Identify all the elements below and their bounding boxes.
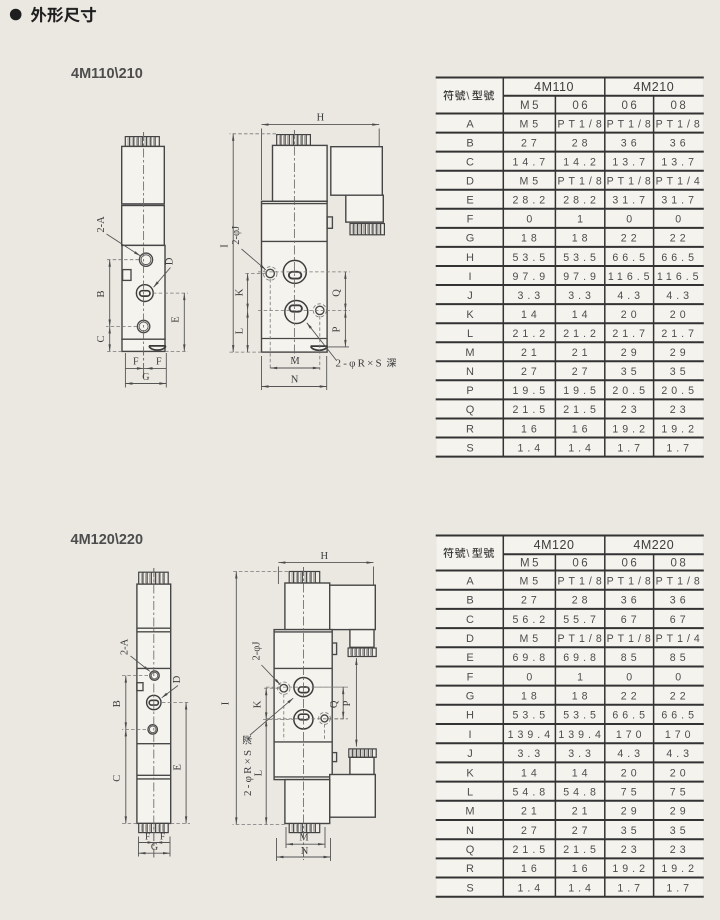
svg-text:18: 18 [572,233,592,245]
svg-text:29: 29 [670,347,690,359]
svg-text:G: G [466,233,475,245]
svg-text:13.7: 13.7 [612,156,649,168]
svg-text:D: D [466,633,474,645]
svg-text:M: M [290,356,300,367]
svg-text:31.7: 31.7 [612,195,649,207]
svg-text:66.5: 66.5 [612,252,649,264]
svg-text:H: H [466,710,474,722]
svg-text:F: F [156,356,162,367]
svg-text:D: D [466,176,474,188]
svg-text:E: E [466,195,473,207]
svg-text:M: M [465,347,474,359]
svg-text:4M110: 4M110 [534,80,574,94]
svg-text:PT1/8: PT1/8 [557,575,605,587]
svg-text:R: R [466,863,474,875]
svg-text:PT1/8: PT1/8 [557,633,605,645]
svg-text:36: 36 [621,137,641,149]
svg-text:4.3: 4.3 [666,748,693,760]
svg-text:PT1/8: PT1/8 [557,118,605,130]
svg-text:27: 27 [521,595,541,607]
svg-text:16: 16 [572,863,592,875]
svg-text:116.5: 116.5 [657,271,703,283]
svg-text:L: L [467,786,473,798]
svg-text:35: 35 [670,825,690,837]
svg-text:06: 06 [622,558,640,570]
svg-text:C: C [466,614,474,626]
svg-text:21: 21 [572,347,592,359]
svg-text:97.9: 97.9 [513,271,550,283]
svg-text:M5: M5 [520,100,541,112]
svg-text:23: 23 [670,404,690,416]
svg-text:170: 170 [616,729,646,741]
svg-text:Q: Q [466,844,475,856]
svg-text:PT1/8: PT1/8 [656,118,704,130]
svg-text:66.5: 66.5 [612,710,649,722]
svg-text:F: F [133,356,139,367]
svg-text:E: E [466,652,473,664]
svg-text:3.3: 3.3 [517,748,544,760]
svg-text:N: N [466,366,474,378]
svg-text:N: N [301,846,309,857]
svg-text:20: 20 [621,767,641,779]
svg-text:53.5: 53.5 [563,710,600,722]
svg-text:56.2: 56.2 [513,614,550,626]
svg-text:2-A: 2-A [120,638,131,655]
svg-text:4M210: 4M210 [633,80,674,94]
svg-text:G: G [151,842,158,853]
svg-text:3.3: 3.3 [517,290,544,302]
svg-text:2-φJ: 2-φJ [251,642,262,661]
svg-text:N: N [466,825,474,837]
svg-text:36: 36 [621,595,641,607]
svg-text:1.4: 1.4 [568,882,595,894]
svg-text:3.3: 3.3 [568,748,595,760]
svg-text:J: J [467,748,473,760]
svg-text:67: 67 [670,614,690,626]
svg-text:27: 27 [521,137,541,149]
svg-text:P: P [342,700,353,706]
svg-text:28: 28 [572,137,592,149]
svg-text:22: 22 [670,233,690,245]
svg-text:M5: M5 [519,575,542,587]
svg-text:4.3: 4.3 [666,290,693,302]
svg-text:D: D [172,675,183,683]
svg-text:20: 20 [621,309,641,321]
svg-text:21: 21 [521,806,541,818]
svg-text:97.9: 97.9 [563,271,600,283]
svg-text:M5: M5 [519,633,542,645]
svg-text:55.7: 55.7 [563,614,600,626]
svg-text:53.5: 53.5 [513,710,550,722]
svg-text:F: F [160,832,165,842]
svg-text:139.4: 139.4 [558,729,605,741]
svg-text:08: 08 [671,558,689,570]
svg-text:29: 29 [621,347,641,359]
svg-text:F: F [467,671,474,683]
svg-text:21.7: 21.7 [612,328,649,340]
svg-text:85: 85 [670,652,690,664]
svg-text:G: G [142,372,149,383]
svg-text:21.7: 21.7 [661,328,698,340]
svg-text:PT1/8: PT1/8 [557,176,605,188]
svg-text:31.7: 31.7 [661,195,698,207]
svg-text:14.7: 14.7 [513,156,550,168]
svg-text:20: 20 [670,767,690,779]
svg-text:53.5: 53.5 [563,252,600,264]
svg-text:Q: Q [329,700,340,708]
svg-text:S: S [466,442,473,454]
svg-text:19.2: 19.2 [661,423,698,435]
svg-text:16: 16 [572,423,592,435]
svg-text:4M120\220: 4M120\220 [71,532,144,548]
svg-text:I: I [221,701,232,705]
svg-text:22: 22 [621,233,641,245]
svg-text:54.8: 54.8 [563,786,600,798]
svg-text:0: 0 [626,671,632,683]
svg-text:20: 20 [670,309,690,321]
svg-text:A: A [466,575,474,587]
svg-text:I: I [468,729,471,741]
svg-text:139.4: 139.4 [508,729,555,741]
svg-text:K: K [235,288,246,296]
svg-text:2-φJ: 2-φJ [231,226,242,245]
svg-text:B: B [96,290,107,297]
svg-text:4.3: 4.3 [617,290,644,302]
svg-text:06: 06 [572,558,590,570]
svg-text:C: C [466,156,474,168]
svg-text:PT1/8: PT1/8 [607,633,655,645]
svg-text:06: 06 [572,100,590,112]
svg-text:Q: Q [332,289,343,297]
svg-text:23: 23 [621,844,641,856]
svg-text:PT1/8: PT1/8 [607,118,655,130]
svg-text:19.2: 19.2 [612,863,649,875]
svg-text:Q: Q [466,404,475,416]
svg-text:08: 08 [671,100,689,112]
svg-text:C: C [112,775,123,782]
svg-text:66.5: 66.5 [661,710,698,722]
svg-text:20.5: 20.5 [612,385,649,397]
svg-text:K: K [466,767,474,779]
svg-text:28.2: 28.2 [563,195,600,207]
svg-text:S: S [466,882,473,894]
svg-text:0: 0 [675,214,681,226]
svg-text:21: 21 [521,347,541,359]
svg-text:20.5: 20.5 [661,385,698,397]
svg-text:35: 35 [670,366,690,378]
svg-text:N: N [291,374,299,385]
svg-text:A: A [466,118,474,130]
svg-text:14: 14 [521,309,541,321]
svg-text:4.3: 4.3 [617,748,644,760]
svg-text:0: 0 [526,214,532,226]
svg-text:D: D [165,257,176,265]
svg-text:B: B [466,137,473,149]
svg-text:0: 0 [526,671,532,683]
svg-text:54.8: 54.8 [513,786,550,798]
svg-text:29: 29 [621,806,641,818]
svg-text:85: 85 [621,652,641,664]
svg-text:M: M [465,806,474,818]
svg-text:16: 16 [521,863,541,875]
svg-text:14.2: 14.2 [563,156,600,168]
svg-text:18: 18 [572,691,592,703]
svg-text:R: R [466,423,474,435]
svg-text:4M220: 4M220 [633,538,674,552]
svg-text:22: 22 [621,691,641,703]
svg-text:3.3: 3.3 [568,290,595,302]
svg-text:4M110\210: 4M110\210 [71,66,143,82]
svg-text:19.2: 19.2 [612,423,649,435]
svg-text:69.8: 69.8 [513,652,550,664]
svg-text:P: P [466,385,473,397]
svg-text:G: G [466,691,475,703]
svg-text:16: 16 [521,423,541,435]
svg-text:14: 14 [521,767,541,779]
svg-text:27: 27 [572,825,592,837]
svg-text:P: P [332,326,343,332]
svg-text:M5: M5 [519,176,542,188]
svg-text:13.7: 13.7 [661,156,698,168]
svg-text:L: L [235,328,246,334]
svg-text:2-φR×S: 2-φR×S [242,748,254,796]
svg-text:21.5: 21.5 [513,404,550,416]
svg-text:1.7: 1.7 [666,442,693,454]
svg-text:53.5: 53.5 [513,252,550,264]
svg-text:I: I [468,271,471,283]
svg-text:H: H [321,551,329,562]
svg-text:PT1/8: PT1/8 [607,176,655,188]
svg-text:14: 14 [572,309,592,321]
svg-text:1.7: 1.7 [617,442,644,454]
svg-text:21.2: 21.2 [563,328,600,340]
svg-text:2-A: 2-A [96,216,107,233]
svg-text:H: H [317,113,325,124]
svg-text:H: H [466,252,474,264]
svg-text:27: 27 [572,366,592,378]
svg-text:66.5: 66.5 [661,252,698,264]
svg-text:21.5: 21.5 [563,404,600,416]
svg-text:27: 27 [521,825,541,837]
svg-text:23: 23 [621,404,641,416]
svg-text:29: 29 [670,806,690,818]
svg-text:PT1/4: PT1/4 [656,176,704,188]
svg-text:PT1/8: PT1/8 [607,575,655,587]
svg-text:28: 28 [572,595,592,607]
svg-text:75: 75 [621,786,641,798]
svg-text:L: L [467,328,473,340]
svg-text:19.5: 19.5 [513,385,550,397]
svg-text:67: 67 [621,614,641,626]
svg-text:19.2: 19.2 [661,863,698,875]
svg-text:B: B [466,595,473,607]
svg-text:PT1/4: PT1/4 [656,633,704,645]
svg-text:1: 1 [577,671,583,683]
svg-text:B: B [112,700,123,707]
svg-text:21.5: 21.5 [563,844,600,856]
svg-text:0: 0 [675,671,681,683]
svg-text:36: 36 [670,595,690,607]
svg-text:21: 21 [572,806,592,818]
svg-text:M5: M5 [519,118,542,130]
svg-text:28.2: 28.2 [513,195,550,207]
svg-text:E: E [172,764,183,770]
svg-text:F: F [467,214,474,226]
svg-text:F: F [145,832,150,842]
svg-text:K: K [253,700,264,708]
svg-text:06: 06 [622,100,640,112]
svg-text:1.7: 1.7 [617,882,644,894]
svg-text:22: 22 [670,691,690,703]
svg-text:170: 170 [665,729,695,741]
svg-text:K: K [466,309,474,321]
svg-text:E: E [171,316,182,322]
svg-text:1.4: 1.4 [517,882,544,894]
svg-text:4M120: 4M120 [534,538,575,552]
svg-text:116.5: 116.5 [608,271,654,283]
svg-text:21.5: 21.5 [513,844,550,856]
svg-text:C: C [96,335,107,342]
svg-text:1: 1 [577,214,583,226]
svg-text:35: 35 [621,825,641,837]
svg-text:I: I [219,244,230,248]
svg-text:27: 27 [521,366,541,378]
svg-text:1.4: 1.4 [517,442,544,454]
svg-text:1.7: 1.7 [666,882,693,894]
svg-text:M: M [299,833,309,844]
svg-text:35: 35 [621,366,641,378]
svg-text:69.8: 69.8 [563,652,600,664]
svg-text:75: 75 [670,786,690,798]
svg-text:23: 23 [670,844,690,856]
svg-text:36: 36 [670,137,690,149]
svg-text:0: 0 [626,214,632,226]
svg-text:2-φR×S: 2-φR×S [336,357,384,369]
svg-text:M5: M5 [520,558,541,570]
svg-text:PT1/8: PT1/8 [656,575,704,587]
svg-text:18: 18 [521,691,541,703]
svg-text:J: J [467,290,473,302]
svg-text:19.5: 19.5 [563,385,600,397]
svg-text:L: L [254,770,265,776]
svg-text:21.2: 21.2 [513,328,550,340]
svg-text:14: 14 [572,767,592,779]
svg-text:18: 18 [521,233,541,245]
svg-text:1.4: 1.4 [568,442,595,454]
